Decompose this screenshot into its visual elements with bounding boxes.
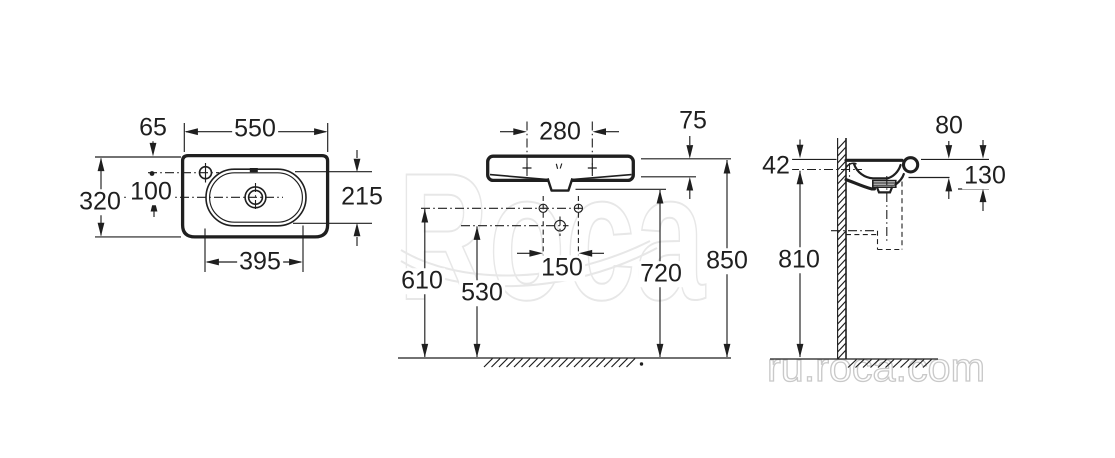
dim-label-550: 550 [232,116,278,142]
dim-label-810: 810 [776,247,822,273]
dim-65 [150,140,157,157]
dim-label-215: 215 [339,184,385,210]
dim-label-720: 720 [638,261,684,287]
dim-label-850: 850 [704,248,750,274]
centerline-dot [150,171,155,176]
dim-label-320: 320 [77,189,123,215]
drain-spigot-side [877,187,892,192]
dim-label-610: 610 [399,268,445,294]
drain-spigot-front [548,178,573,190]
dim-label-530: 530 [459,280,505,306]
drain-flange-side [873,181,896,188]
dim-label-42: 42 [760,153,792,179]
trap-hidden-outline [846,182,902,250]
drawing-svg: Roca ru.roca.com [0,0,1115,458]
dim-label-75: 75 [677,108,709,134]
wall-section [838,138,846,360]
dim-label-80: 80 [933,113,965,139]
dim-label-65: 65 [137,115,169,141]
basin-profile-side [846,158,918,193]
dim-label-280: 280 [537,119,583,145]
dim-label-130: 130 [962,163,1008,189]
dim-80 [945,141,952,199]
dim-label-395: 395 [237,249,283,275]
side-extension-lines [791,159,989,189]
floor-hatch-dot [640,362,643,365]
floor-hatch-front [484,359,635,368]
dim-label-150: 150 [539,255,585,281]
front-rim-roll [904,158,918,172]
technical-drawing-canvas: Roca ru.roca.com [0,0,1115,458]
dim-label-100: 100 [128,179,174,205]
overflow-slot [250,168,258,172]
